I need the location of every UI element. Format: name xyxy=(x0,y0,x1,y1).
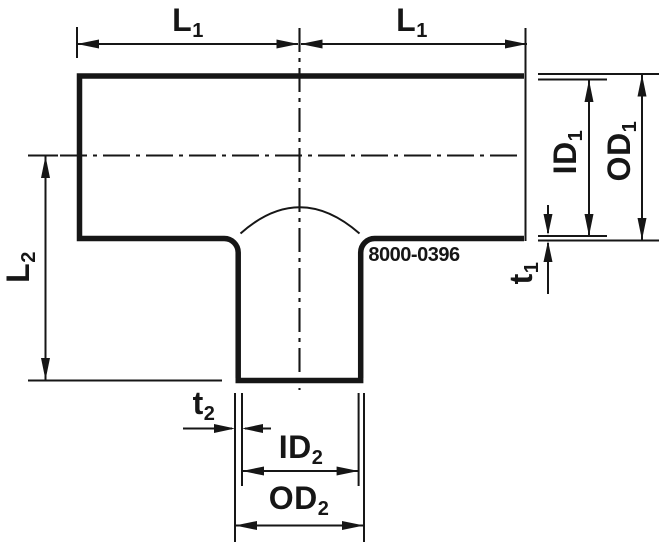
l1-left-label: L1 xyxy=(172,2,204,42)
l1-arrowhead-right xyxy=(505,40,527,49)
technical-drawing-tee: L1 L1 L2 ID1 OD1 t1 xyxy=(0,0,659,542)
id1-arrowhead-bottom xyxy=(585,214,594,236)
od1-arrowhead-bottom xyxy=(638,218,647,240)
drawing-canvas: L1 L1 L2 ID1 OD1 t1 xyxy=(0,0,659,542)
dim-l1: L1 L1 xyxy=(77,2,527,58)
t1-arrowhead-up xyxy=(544,241,553,262)
dim-t1: t1 xyxy=(503,205,553,294)
t1-arrowhead-down xyxy=(544,214,553,235)
od2-arrowhead-left xyxy=(235,521,257,530)
l1-arrowhead-center-left xyxy=(301,40,323,49)
dim-id2: ID2 xyxy=(242,393,359,486)
id2-label: ID2 xyxy=(279,429,324,469)
dim-l2: L2 xyxy=(0,156,222,381)
l1-arrowhead-left xyxy=(77,40,99,49)
t2-label: t2 xyxy=(193,385,216,425)
id2-arrowhead-right xyxy=(337,467,359,476)
tee-outline xyxy=(80,76,525,381)
l2-arrowhead-bottom xyxy=(41,358,50,380)
part-number: 8000-0396 xyxy=(368,244,460,266)
od2-label: OD2 xyxy=(269,480,330,520)
l2-label: L2 xyxy=(0,251,40,283)
od1-label: OD1 xyxy=(601,121,641,182)
id2-arrowhead-left xyxy=(242,467,264,476)
id1-arrowhead-top xyxy=(585,80,594,102)
t2-arrowhead-left xyxy=(242,424,263,433)
l2-arrowhead-top xyxy=(41,156,50,178)
tee-body xyxy=(80,28,526,381)
dim-t2: t2 xyxy=(183,385,271,433)
id1-label: ID1 xyxy=(547,130,587,175)
t2-arrowhead-right xyxy=(214,424,235,433)
od2-arrowhead-right xyxy=(342,521,364,530)
l1-arrowhead-center-right xyxy=(277,40,299,49)
l1-right-label: L1 xyxy=(396,2,428,42)
od1-arrowhead-top xyxy=(638,75,647,97)
t1-label: t1 xyxy=(503,262,543,285)
dim-od2: OD2 xyxy=(235,393,364,542)
